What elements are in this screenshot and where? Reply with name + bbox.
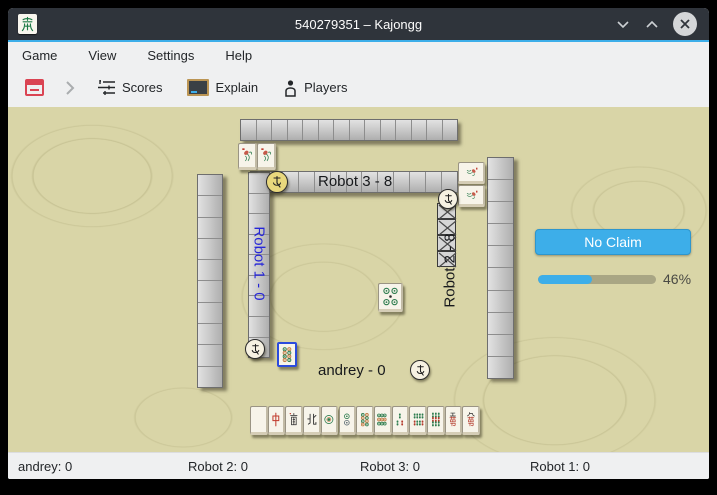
circle-9-face	[376, 409, 388, 430]
flower-face	[241, 146, 254, 165]
players-button[interactable]: Players	[283, 79, 347, 97]
status-robot2: Robot 2: 0	[188, 459, 248, 474]
circle-2-face	[341, 409, 353, 430]
circle-5-face	[381, 286, 400, 307]
player-label-robot2: Robot 2 - 8	[442, 229, 459, 313]
wall-east	[487, 157, 514, 379]
kajongg-window: 540279351 – Kajongg Game View Settings H…	[8, 8, 709, 479]
flower-face	[464, 162, 478, 183]
hand-tile-north-wind[interactable]	[303, 406, 321, 435]
circle-1-face	[323, 409, 335, 430]
red-dragon-face	[270, 409, 282, 430]
statusbar: andrey: 0 Robot 2: 0 Robot 3: 0 Robot 1:…	[8, 452, 709, 479]
hand-tile-circle-2[interactable]	[339, 406, 357, 435]
wall-tile-back	[302, 120, 318, 140]
explain-button[interactable]: Explain	[187, 79, 258, 96]
south-wind-face	[288, 409, 300, 430]
wall-tile-back	[488, 158, 513, 179]
flower-face	[464, 185, 478, 206]
player-label-robot3: Robot 3 - 8	[318, 173, 392, 190]
hand-tile-circle-8[interactable]	[356, 406, 374, 435]
wall-tile-back	[393, 172, 409, 192]
wind-disc-robot3	[266, 171, 288, 193]
robot2-bonus-tile	[458, 162, 485, 184]
players-icon	[283, 79, 298, 97]
abort-game-icon	[25, 79, 44, 96]
explain-label: Explain	[215, 80, 258, 95]
player-label-andrey: andrey - 0	[318, 362, 386, 379]
menu-settings[interactable]: Settings	[147, 44, 194, 67]
players-label: Players	[304, 80, 347, 95]
wall-tile-back	[488, 267, 513, 289]
toolbar: Scores Explain Players	[8, 68, 709, 107]
character-5-face	[447, 409, 459, 430]
menu-view[interactable]: View	[88, 44, 116, 67]
claim-timeout-progress: 46%	[538, 272, 693, 286]
wall-tile-back	[241, 120, 256, 140]
wall-tile-back	[380, 120, 396, 140]
center-discard-tile	[378, 283, 403, 312]
desktop: 540279351 – Kajongg Game View Settings H…	[0, 0, 717, 495]
minimize-icon[interactable]	[615, 16, 631, 32]
north-wind-face	[306, 409, 318, 430]
wall-tile-back	[298, 172, 314, 192]
progress-fill	[538, 275, 592, 284]
wall-tile-back	[198, 217, 222, 238]
menu-help[interactable]: Help	[225, 44, 252, 67]
wall-tile-back	[333, 120, 349, 140]
wall-tile-back	[442, 120, 458, 140]
player-label-robot1: Robot 1 - 0	[251, 223, 268, 305]
wall-tile-back	[256, 120, 272, 140]
blackboard-icon	[187, 79, 209, 96]
wall-tile-back	[411, 120, 427, 140]
window-title: 540279351 – Kajongg	[8, 17, 709, 32]
hand-tile-bamboo-9[interactable]	[427, 406, 445, 435]
status-robot1: Robot 1: 0	[530, 459, 590, 474]
status-robot3: Robot 3: 0	[360, 459, 420, 474]
hand-tile-red-dragon[interactable]	[268, 406, 286, 435]
menu-game[interactable]: Game	[22, 44, 57, 67]
wall-tile-back	[198, 344, 222, 365]
wall-tile-back	[198, 259, 222, 280]
bamboo-8-face	[412, 409, 424, 430]
menubar: Game View Settings Help	[8, 42, 709, 68]
wall-tile-back	[198, 195, 222, 216]
progress-track	[538, 275, 656, 284]
character-9-face	[465, 409, 477, 430]
focused-bonus-tile[interactable]	[277, 342, 297, 367]
progress-percent-label: 46%	[663, 271, 691, 287]
wind-disc-robot1	[245, 339, 265, 359]
no-claim-button[interactable]: No Claim	[535, 229, 691, 255]
wall-tile-back	[198, 366, 222, 387]
game-table: Robot 3 - 8 Robot 1 - 0 Robot 2 - 8 andr…	[8, 107, 709, 452]
hand-tile-character-5[interactable]	[445, 406, 463, 435]
circle-8-face	[359, 409, 371, 430]
wall-tile-back	[488, 201, 513, 223]
wind-disc-andrey	[410, 360, 430, 380]
hand-tile-character-9[interactable]	[462, 406, 480, 435]
hand-tile-bamboo-8[interactable]	[409, 406, 427, 435]
robot3-bonus-tile	[238, 143, 257, 170]
wall-tile-back	[318, 120, 334, 140]
wall-tile-back	[488, 245, 513, 267]
wall-west	[197, 174, 223, 388]
white-dragon-face	[253, 409, 265, 430]
next-button[interactable]	[63, 80, 76, 96]
bamboo-3-face	[394, 409, 406, 430]
chevron-right-icon	[63, 80, 76, 96]
status-andrey: andrey: 0	[18, 459, 72, 474]
wall-tile-back	[488, 334, 513, 356]
scores-label: Scores	[122, 80, 162, 95]
hand-tile-circle-9[interactable]	[374, 406, 392, 435]
robot2-bonus-tile	[458, 185, 485, 207]
maximize-icon[interactable]	[644, 16, 660, 32]
wall-tile-back	[488, 290, 513, 312]
bamboo-9-face	[430, 409, 442, 430]
wind-disc-robot2	[438, 189, 458, 209]
robot3-bonus-tile	[257, 143, 276, 170]
hand-tile-circle-1[interactable]	[321, 406, 339, 435]
wall-tile-back	[249, 193, 269, 214]
scores-icon	[97, 79, 116, 96]
hand-tile-bamboo-3[interactable]	[392, 406, 410, 435]
wall-tile-back	[395, 120, 411, 140]
wall-tile-back	[488, 356, 513, 378]
wall-tile-back	[198, 238, 222, 259]
wall-tile-back	[409, 172, 425, 192]
wall-tile-back	[488, 223, 513, 245]
wall-tile-back	[198, 175, 222, 195]
wall-tile-back	[488, 312, 513, 334]
flower-face	[260, 146, 273, 165]
circle-8-face	[280, 346, 294, 363]
wall-tile-back	[426, 120, 442, 140]
wall-tile-back	[488, 179, 513, 201]
abort-game-button[interactable]	[25, 79, 44, 96]
wall-tile-back	[198, 323, 222, 344]
wall-tile-back	[364, 120, 380, 140]
wall-north	[240, 119, 458, 141]
wall-tile-back	[249, 316, 269, 337]
wall-tile-back	[425, 172, 441, 192]
wall-tile-back	[287, 120, 303, 140]
wall-tile-back	[349, 120, 365, 140]
wall-tile-back	[198, 302, 222, 323]
wall-tile-back	[271, 120, 287, 140]
window-controls	[615, 12, 709, 36]
close-icon[interactable]	[673, 12, 697, 36]
hand-tile-south-wind[interactable]	[285, 406, 303, 435]
wall-tile-back	[198, 280, 222, 301]
hand-tile-white-dragon[interactable]	[250, 406, 268, 435]
titlebar[interactable]: 540279351 – Kajongg	[8, 8, 709, 40]
scores-button[interactable]: Scores	[97, 79, 162, 96]
